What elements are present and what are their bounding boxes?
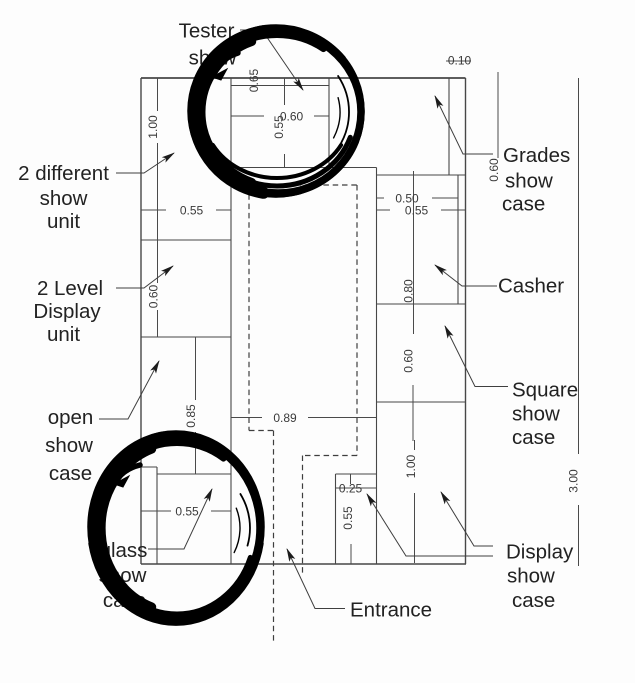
- svg-text:show: show: [40, 187, 88, 210]
- svg-text:1.00: 1.00: [404, 454, 418, 478]
- svg-text:Display: Display: [33, 300, 101, 323]
- svg-text:2 different: 2 different: [18, 162, 109, 185]
- svg-text:3.00: 3.00: [567, 469, 581, 493]
- svg-text:open: open: [48, 406, 94, 429]
- svg-text:2 Level: 2 Level: [37, 277, 103, 300]
- svg-text:show: show: [45, 434, 93, 457]
- svg-text:Casher: Casher: [498, 275, 564, 298]
- svg-text:case: case: [512, 589, 555, 612]
- svg-text:unit: unit: [47, 210, 80, 233]
- svg-text:case: case: [502, 193, 545, 216]
- svg-text:Display: Display: [506, 541, 574, 564]
- svg-text:0.55: 0.55: [180, 204, 204, 218]
- svg-text:0.80: 0.80: [402, 279, 416, 303]
- svg-text:0.65: 0.65: [247, 68, 261, 92]
- svg-text:Square: Square: [512, 379, 578, 402]
- svg-text:0.85: 0.85: [184, 404, 198, 428]
- svg-text:unit: unit: [47, 323, 80, 346]
- svg-text:0.55: 0.55: [341, 506, 355, 530]
- svg-text:show: show: [512, 403, 560, 426]
- svg-text:Grades: Grades: [503, 144, 570, 167]
- svg-text:show: show: [507, 565, 555, 588]
- svg-text:0.60: 0.60: [487, 158, 501, 182]
- svg-text:0.55: 0.55: [175, 505, 199, 519]
- svg-text:case: case: [512, 426, 555, 449]
- svg-text:1.00: 1.00: [146, 115, 160, 139]
- svg-text:0.25: 0.25: [339, 482, 363, 496]
- svg-text:Tester: Tester: [179, 20, 235, 43]
- svg-text:0.89: 0.89: [273, 411, 297, 425]
- svg-text:show: show: [505, 170, 553, 193]
- svg-text:0.55: 0.55: [272, 115, 286, 139]
- svg-text:case: case: [49, 462, 92, 485]
- svg-text:0.60: 0.60: [147, 284, 161, 308]
- svg-text:0.10: 0.10: [448, 54, 472, 68]
- svg-text:0.60: 0.60: [402, 349, 416, 373]
- svg-text:0.55: 0.55: [405, 204, 429, 218]
- svg-text:Entrance: Entrance: [350, 599, 432, 622]
